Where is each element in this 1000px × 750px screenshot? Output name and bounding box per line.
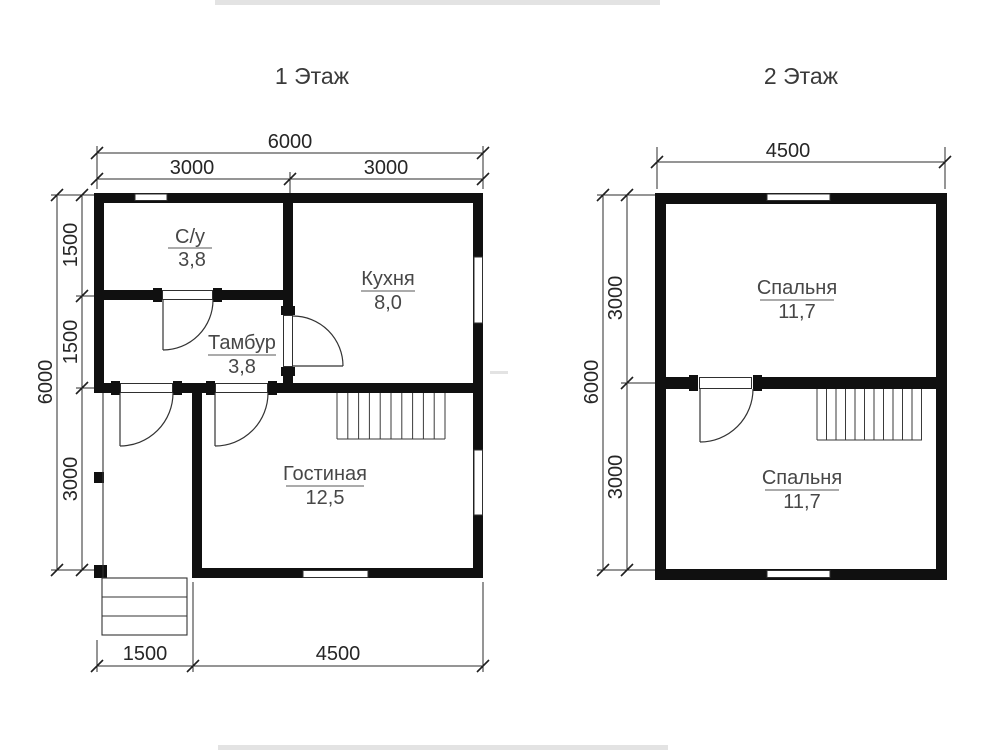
door-panel: [216, 384, 268, 393]
dim-1500-a: 1500: [60, 223, 82, 268]
dim-1500-bottom: 1500: [123, 643, 168, 665]
door-arc: [700, 389, 753, 442]
floor2-plan: 2 Этаж: [581, 63, 951, 580]
room-area-bedroom-top: 11,7: [778, 301, 815, 323]
door-arc: [163, 300, 213, 350]
floor2-title: 2 Этаж: [764, 63, 839, 89]
dim-3000-a: 3000: [605, 276, 627, 321]
mid-artifact-dash: [490, 371, 508, 374]
room-label-vestibule: Тамбур: [208, 332, 276, 354]
floorplan-drawing: 1 Этаж: [0, 0, 1000, 750]
floor1-dim-top: 6000 3000 3000: [91, 131, 489, 193]
room-label-kitchen: Кухня: [361, 268, 415, 290]
window: [474, 450, 483, 515]
room-area-kitchen: 8,0: [374, 292, 402, 314]
floor2-stairs: [817, 389, 922, 440]
porch-living-wall: [192, 393, 202, 578]
floorplan-canvas: 1 Этаж: [0, 0, 1000, 750]
floor1-plan: 1 Этаж: [35, 63, 489, 672]
door-panel: [121, 384, 173, 393]
floor1-stairs: [337, 393, 445, 439]
floor1-doors: [111, 288, 343, 446]
window: [135, 194, 167, 201]
window: [767, 571, 830, 578]
dim-6000-vert: 6000: [35, 360, 57, 405]
floor2-dim-left: 6000 3000 3000: [581, 189, 655, 576]
dim-1500-b: 1500: [60, 320, 82, 365]
dim-3000-vert: 3000: [60, 457, 82, 502]
door-panel: [700, 378, 752, 389]
bottom-artifact-bar: [218, 745, 668, 750]
door-arc: [215, 393, 268, 446]
dim-6000: 6000: [268, 131, 313, 153]
floor2-dim-top: 4500: [651, 140, 951, 189]
floor1-dim-left: 6000 1500 1500 3000: [35, 189, 94, 576]
room-label-bathroom: С/у: [175, 226, 205, 248]
porch-corner-pier: [94, 565, 107, 578]
window: [474, 257, 483, 323]
door-arc: [293, 316, 343, 366]
floor2-door: [689, 375, 762, 442]
door-panel: [163, 291, 213, 300]
room-area-living: 12,5: [306, 487, 345, 509]
door-arc: [120, 393, 173, 446]
room-area-bedroom-bottom: 11,7: [783, 491, 820, 513]
room-label-bedroom-top: Спальня: [757, 277, 837, 299]
dim-3000-right: 3000: [364, 157, 409, 179]
floor2-room-labels: Спальня 11,7 Спальня 11,7: [757, 277, 842, 513]
room-area-bathroom: 3,8: [178, 249, 206, 271]
room-label-bedroom-bottom: Спальня: [762, 467, 842, 489]
dim-4500: 4500: [766, 140, 811, 162]
dim-4500-bottom: 4500: [316, 643, 361, 665]
window: [767, 194, 830, 201]
dim-3000-left: 3000: [170, 157, 215, 179]
floor1-title: 1 Этаж: [275, 63, 350, 89]
dim-6000-vert: 6000: [581, 360, 603, 405]
room-area-vestibule: 3,8: [228, 356, 256, 378]
dim-3000-b: 3000: [605, 455, 627, 500]
door-panel: [284, 316, 293, 367]
entry-steps: [102, 393, 187, 635]
window: [303, 571, 368, 578]
top-artifact-bar: [215, 0, 660, 5]
room-label-living: Гостиная: [283, 463, 367, 485]
floor1-dim-bottom: 1500 4500: [91, 582, 489, 672]
